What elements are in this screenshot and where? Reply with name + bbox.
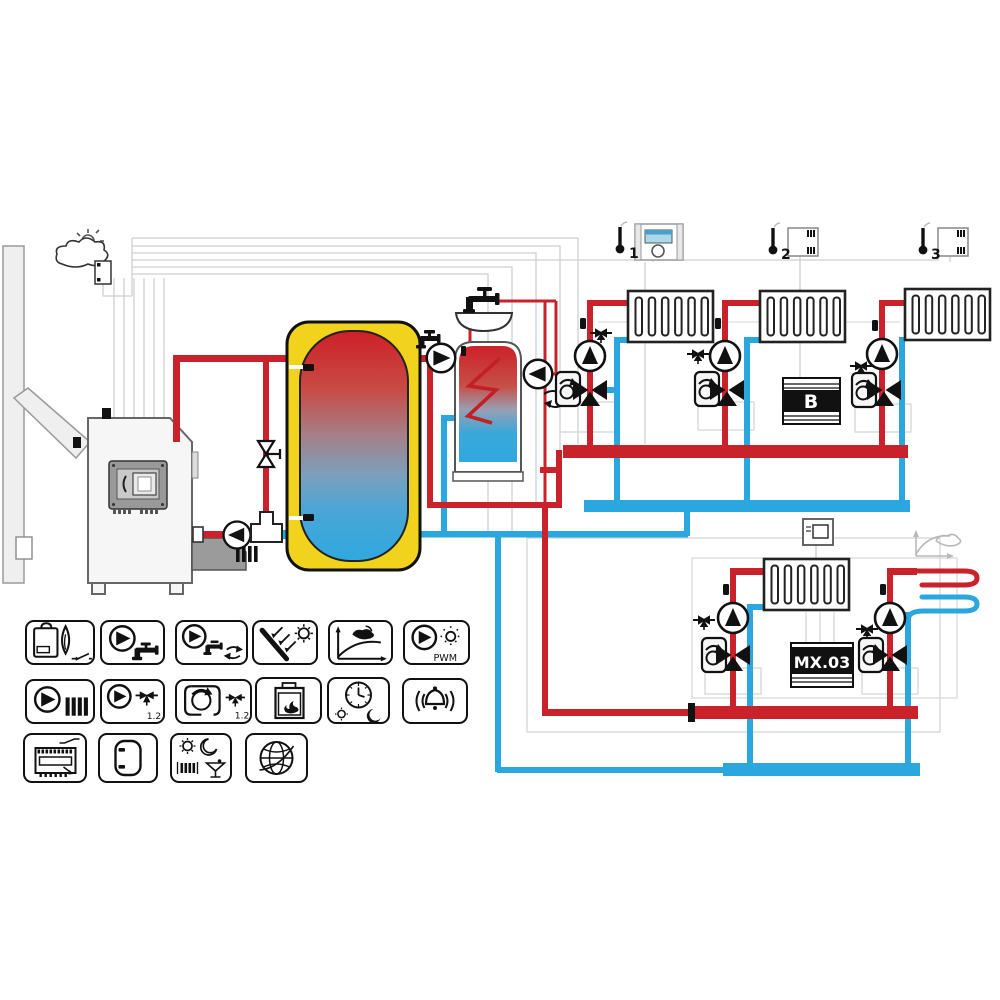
circuit5-pump (875, 603, 905, 633)
mixed-pump-label: 1.2 (147, 712, 162, 722)
shutoff-valve (258, 441, 280, 467)
tool-solar-collector[interactable] (252, 620, 318, 665)
dhw-circulation-pump (524, 360, 553, 389)
duct-stub (73, 437, 81, 448)
buffer-sensor-top (303, 364, 314, 371)
pwm-label: PWM (433, 653, 457, 663)
zone-sensor-3-icon (919, 223, 930, 254)
circuit4-pump (718, 603, 748, 633)
tool-mixer-actuator[interactable]: 1.2 (175, 679, 252, 724)
zone-1-label: 1 (629, 246, 639, 262)
supply-manifold-top (563, 445, 908, 458)
tool-pwm-pump[interactable]: PWM (403, 620, 470, 665)
room-unit-3 (938, 228, 968, 256)
dhw-tank (453, 342, 523, 481)
chimney-wall (3, 246, 90, 583)
heating-curve-sketch (913, 530, 961, 559)
return-manifold-bottom (723, 763, 920, 776)
radiator-4 (764, 559, 849, 610)
circuit3-pump (867, 339, 897, 369)
room-controller-1 (635, 224, 683, 260)
chimney-cleanout (16, 537, 32, 559)
circuit1-pump (575, 341, 605, 371)
boiler (73, 408, 246, 594)
tool-mixed-circuit-pump[interactable]: 1.2 (100, 679, 165, 724)
tool-operating-modes[interactable] (170, 733, 232, 783)
boiler-controller (109, 461, 167, 514)
buffer-tank (287, 322, 420, 570)
tool-solid-fuel-stove[interactable] (255, 677, 322, 724)
display-unit (803, 519, 833, 545)
flue-stub (102, 408, 111, 419)
return-manifold-top (584, 500, 910, 512)
hydraulic-schematic: 1 2 3 B MX.03 (0, 0, 1000, 1000)
pipe-fitting (193, 527, 203, 542)
radiator-2 (760, 291, 845, 342)
tool-boiler-burner[interactable] (25, 620, 95, 665)
tap-icon (463, 287, 500, 313)
tool-internet[interactable] (245, 733, 308, 783)
floor-heating-coil (908, 571, 977, 640)
module-mx03-label: MX.03 (794, 653, 851, 672)
room-unit-2 (788, 228, 818, 256)
buffer-sensor-bottom (303, 514, 314, 521)
air-vent-2 (687, 351, 709, 364)
schematic-page: 1 2 3 B MX.03 (0, 0, 1000, 1000)
circuit2-pump (710, 341, 740, 371)
zone-sensor-1-icon (616, 222, 627, 253)
module-b-label: B (804, 391, 818, 413)
tool-dhw-circulation-pump[interactable] (175, 620, 248, 665)
air-vent-4 (693, 617, 715, 630)
module-b: B (783, 378, 840, 424)
tool-heating-pump[interactable] (25, 679, 95, 724)
tool-dhw-pump[interactable] (100, 620, 165, 665)
supply-manifold-bottom (688, 703, 918, 722)
radiator-1 (628, 291, 713, 342)
tool-time-program[interactable] (327, 677, 390, 724)
tool-heating-curve[interactable] (328, 620, 393, 665)
zone-2-label: 2 (781, 247, 791, 263)
basin-icon (456, 313, 512, 331)
module-mx03: MX.03 (791, 643, 853, 687)
tool-relay-module[interactable] (23, 733, 87, 783)
tool-alarm[interactable] (402, 678, 468, 724)
dhw-sensor (461, 346, 466, 356)
tool-buffer-tank[interactable] (98, 733, 158, 783)
mixer-actuator-label: 1.2 (235, 712, 249, 722)
zone-sensor-2-icon (769, 223, 780, 254)
outdoor-sensor (95, 261, 111, 284)
zone-3-label: 3 (931, 247, 941, 263)
radiator-3 (905, 289, 990, 340)
tee-fitting (251, 512, 282, 542)
boiler-pump (224, 522, 251, 549)
dhw-charge-pump (427, 344, 456, 373)
